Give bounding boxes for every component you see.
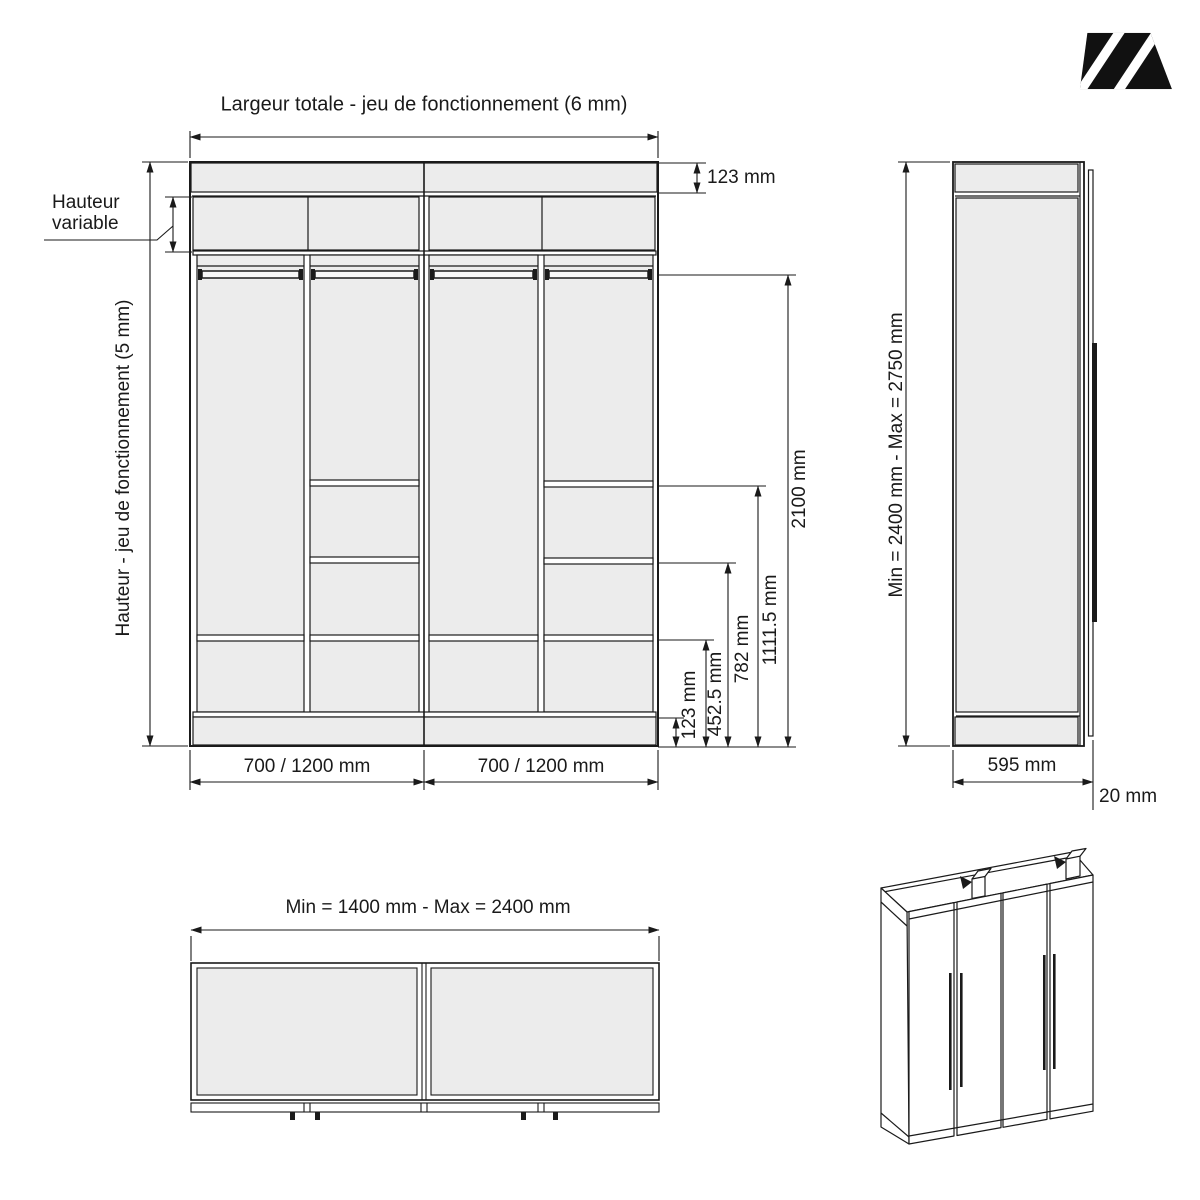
side-panel-face [956,198,1078,712]
brand-logo-icon [1078,32,1172,90]
side-door-dim-label: 20 mm [1099,786,1157,808]
front-column-1 [197,255,304,712]
side-plinth [955,717,1078,745]
side-elevation-view [953,162,1097,746]
door-1 [909,903,954,1144]
side-top-filler [955,164,1078,192]
plan-door-band [191,1103,659,1112]
front-width-title: Largeur totale - jeu de fonctionnement (… [221,94,628,117]
door-3 [1003,884,1047,1127]
front-variable-height-zone-left [193,197,419,250]
drawing-linework [0,0,1200,1200]
side-handle [1092,343,1097,622]
door-2 [957,893,1001,1135]
side-depth-dim-label: 595 mm [988,755,1057,777]
front-top-right-dim-label: 123 mm [707,167,776,189]
front-bottom-dim-left-label: 700 / 1200 mm [244,756,371,778]
front-elevation-view [190,162,658,746]
plan-view [191,930,659,1120]
side-height-label: Min = 2400 mm - Max = 2750 mm [886,312,908,597]
perspective-view [881,849,1093,1145]
dim-2100mm-label: 2100 mm [789,449,811,528]
dim-1111mm-label: 1111.5 mm [760,575,782,666]
door-4 [1050,875,1093,1119]
plan-handle-marks [290,1112,558,1120]
dim-123mm-label: 123 mm [679,671,701,740]
hauteur-variable-label: Hauteur variable [52,192,120,234]
left-side-panel [881,888,909,1144]
plan-panel-left [197,968,417,1095]
plan-width-label: Min = 1400 mm - Max = 2400 mm [285,897,570,919]
front-column-3 [429,255,538,712]
front-bottom-dim-right-label: 700 / 1200 mm [478,756,605,778]
front-height-label: Hauteur - jeu de fonctionnement (5 mm) [113,300,135,637]
dim-782mm-label: 782 mm [732,615,754,684]
hanging-rails [198,269,652,280]
dim-452mm-label: 452.5 mm [705,652,727,736]
plan-panel-right [431,968,653,1095]
wardrobe-technical-drawing: Largeur totale - jeu de fonctionnement (… [0,0,1200,1200]
